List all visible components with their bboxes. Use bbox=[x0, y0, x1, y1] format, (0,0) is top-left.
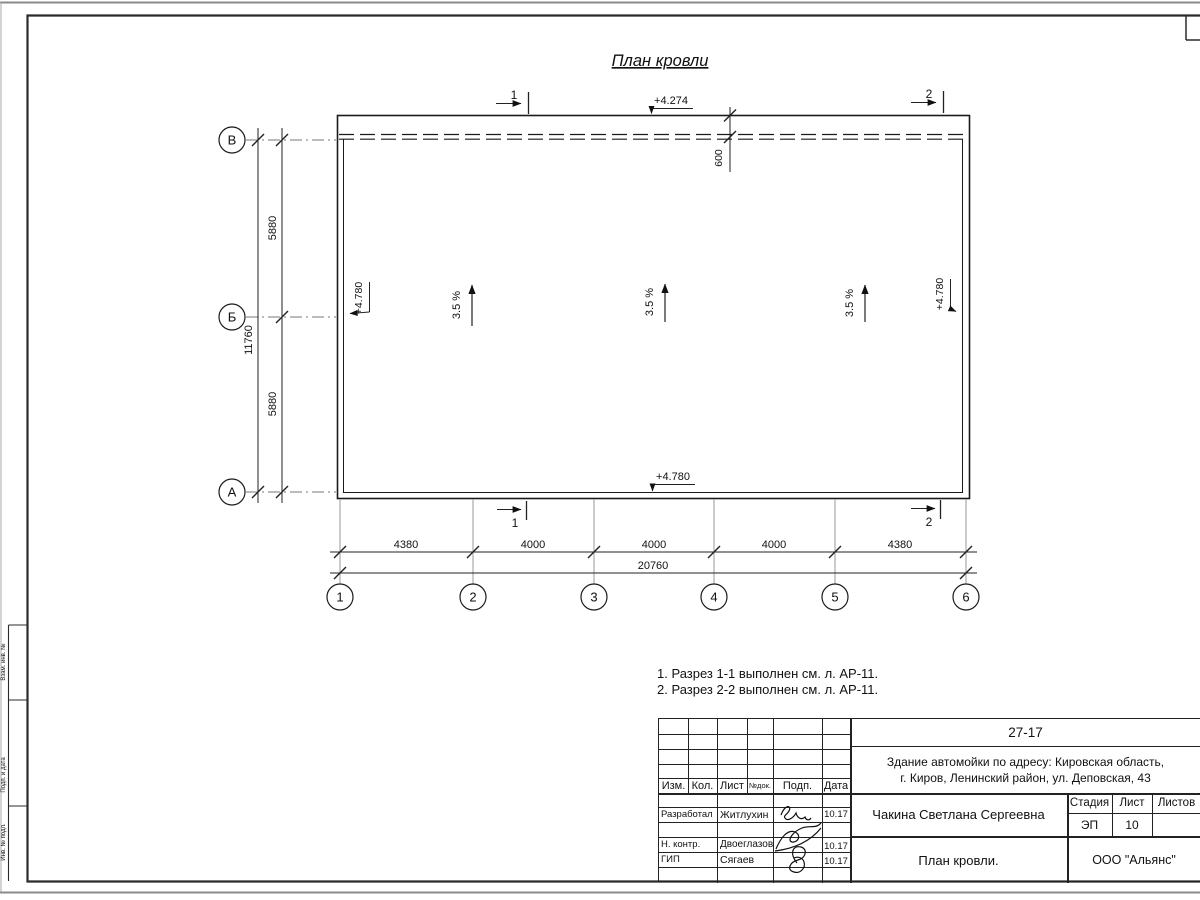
section-mark-1-top: 1 bbox=[496, 88, 529, 114]
tb-col-list: Лист bbox=[717, 778, 747, 793]
axis-label-a: А bbox=[228, 485, 237, 500]
tb-date-gip: 10.17 bbox=[822, 854, 850, 869]
margin-label: Инв. № подл. bbox=[0, 823, 7, 861]
axis-label-3: 3 bbox=[590, 590, 597, 605]
tb-client: Чакина Светлана Сергеевна bbox=[850, 793, 1067, 836]
elev-value: +4.780 bbox=[656, 471, 690, 483]
slope-label: 3.5 % bbox=[451, 291, 463, 319]
dim-4000-1: 4000 bbox=[521, 539, 545, 551]
tb-name-developer: Житлухин bbox=[720, 807, 773, 822]
tb-drawing-name: План кровли. bbox=[850, 837, 1067, 883]
tb-col-kol: Кол. bbox=[688, 778, 717, 793]
dim-4000-2: 4000 bbox=[642, 539, 666, 551]
tb-col-ndok: №док. bbox=[747, 778, 773, 793]
section-mark-2-bottom: 2 bbox=[911, 500, 941, 529]
left-dimensions bbox=[252, 128, 288, 503]
tb-project-code: 27-17 bbox=[850, 719, 1200, 746]
axis-label-5: 5 bbox=[831, 590, 838, 605]
dim-20760: 20760 bbox=[638, 560, 669, 572]
note-line: 1. Разрез 1-1 выполнен см. л. АР-11. bbox=[657, 666, 878, 682]
tb-name-ncontrol: Двоеглазов bbox=[720, 837, 773, 852]
margin-label: Взам. инв. № bbox=[0, 643, 7, 680]
tb-role-gip: ГИП bbox=[661, 852, 717, 867]
tb-stage-label: Стадия bbox=[1067, 793, 1112, 813]
elevation-roof-left: +4.780 bbox=[350, 282, 370, 315]
axis-bubbles-bottom bbox=[327, 584, 979, 610]
elevation-roof-right: +4.780 bbox=[934, 278, 956, 312]
tb-name-gip: Сягаев bbox=[720, 852, 773, 867]
section-mark-1-bottom: 1 bbox=[497, 501, 527, 530]
elev-value: +4.780 bbox=[353, 282, 365, 315]
slope-label: 3.5 % bbox=[844, 289, 856, 317]
tb-address-line2: г. Киров, Ленинский район, ул. Деповская… bbox=[900, 770, 1151, 786]
section-mark-2-top: 2 bbox=[911, 87, 944, 113]
signatures bbox=[773, 799, 823, 883]
tb-col-podp: Подп. bbox=[773, 778, 822, 793]
dim-5880-bottom: 5880 bbox=[267, 392, 279, 416]
drawing-sheet: Взам. инв. № Подп. и дата Инв. № подл. П… bbox=[0, 0, 1200, 900]
dim-5880-top: 5880 bbox=[267, 216, 279, 240]
tb-stage-value: ЭП bbox=[1067, 813, 1112, 836]
tb-company: ООО "Альянс" bbox=[1067, 837, 1200, 883]
dim-4380-1: 4380 bbox=[394, 539, 418, 551]
notes: 1. Разрез 1-1 выполнен см. л. АР-11. 2. … bbox=[657, 666, 878, 698]
section-label: 2 bbox=[926, 87, 933, 101]
margin-label: Подп. и дата bbox=[1, 757, 7, 793]
axis-label-6: 6 bbox=[962, 590, 969, 605]
slope-label: 3.5 % bbox=[644, 288, 656, 316]
tb-date-ncontrol: 10.17 bbox=[822, 839, 850, 854]
axis-lines bbox=[246, 140, 966, 584]
axis-label-1: 1 bbox=[336, 590, 343, 605]
elevation-canopy: +4.274 bbox=[651, 95, 693, 114]
elevation-roof-bottom: +4.780 bbox=[652, 471, 695, 491]
dim-4000-3: 4000 bbox=[762, 539, 786, 551]
axis-label-v: В bbox=[228, 133, 237, 148]
tb-address-line1: Здание автомойки по адресу: Кировская об… bbox=[887, 754, 1164, 770]
tb-address: Здание автомойки по адресу: Кировская об… bbox=[850, 746, 1200, 793]
section-label: 1 bbox=[512, 516, 519, 530]
slope-arrows bbox=[472, 284, 865, 326]
axis-label-4: 4 bbox=[710, 590, 717, 605]
tb-sheet-value: 10 bbox=[1112, 813, 1152, 836]
note-line: 2. Разрез 2-2 выполнен см. л. АР-11. bbox=[657, 682, 878, 698]
section-label: 2 bbox=[926, 515, 933, 529]
tb-role-developer: Разработал bbox=[661, 807, 717, 822]
axis-label-2: 2 bbox=[469, 590, 476, 605]
title-block: Изм. Кол. Лист №док. Подп. Дата Разработ… bbox=[658, 718, 1200, 882]
dim-11760: 11760 bbox=[243, 325, 255, 355]
tb-sheets-label: Листов bbox=[1152, 793, 1200, 813]
elev-value: +4.274 bbox=[654, 95, 688, 107]
tb-col-izm: Изм. bbox=[659, 778, 688, 793]
tb-col-data: Дата bbox=[822, 778, 850, 793]
section-label: 1 bbox=[511, 88, 518, 102]
dim-4380-2: 4380 bbox=[888, 539, 912, 551]
dim-600: 600 bbox=[713, 149, 725, 167]
tb-date-developer: 10.17 bbox=[822, 807, 850, 822]
signature-developer bbox=[781, 807, 811, 820]
tb-role-ncontrol: Н. контр. bbox=[661, 837, 717, 852]
tb-sheet-label: Лист bbox=[1112, 793, 1152, 813]
axis-label-b: Б bbox=[228, 310, 237, 325]
elev-value: +4.780 bbox=[934, 278, 946, 311]
signature-gip bbox=[790, 847, 806, 873]
drawing-title: План кровли bbox=[612, 52, 709, 70]
